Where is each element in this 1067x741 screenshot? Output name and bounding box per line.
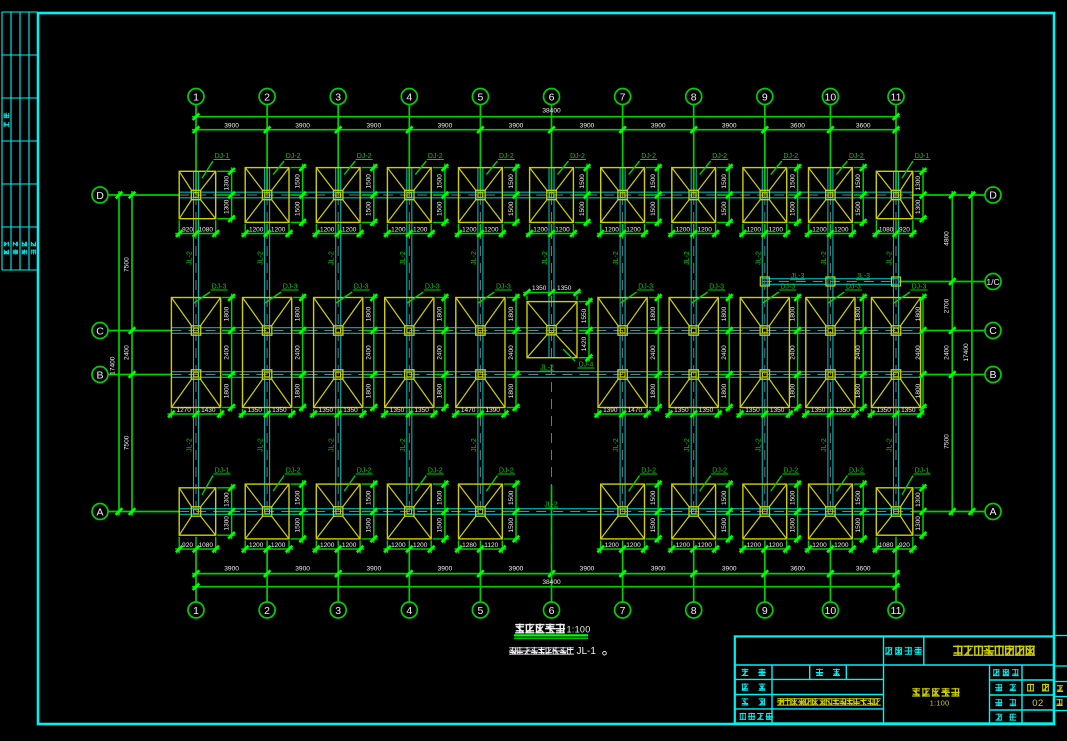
svg-text:3900: 3900 [224,122,239,129]
svg-text:1800: 1800 [721,383,728,398]
svg-text:DJ-2: DJ-2 [570,153,585,160]
svg-text:DJ-2: DJ-2 [783,153,798,160]
svg-text:920: 920 [182,542,193,549]
svg-text:1500: 1500 [294,174,301,189]
svg-text:1550: 1550 [581,308,588,323]
svg-text:1280: 1280 [462,542,477,549]
svg-text:1500: 1500 [650,490,657,505]
svg-text:2400: 2400 [855,345,862,360]
svg-text:DJ-2: DJ-2 [357,153,372,160]
svg-text:3900: 3900 [295,566,310,573]
svg-text:B: B [96,369,103,381]
svg-text:1200: 1200 [626,226,641,233]
svg-text:17400: 17400 [963,343,970,362]
svg-text:1500: 1500 [508,174,515,189]
svg-text:1500: 1500 [855,490,862,505]
svg-text:2400: 2400 [366,345,373,360]
svg-text:1800: 1800 [915,383,922,398]
svg-text:1:100: 1:100 [566,624,590,634]
svg-text:8: 8 [691,605,697,617]
svg-text:1200: 1200 [676,542,691,549]
svg-text:JL-2: JL-2 [821,251,828,265]
svg-text:3900: 3900 [366,122,381,129]
svg-text:DJ-1: DJ-1 [915,468,930,475]
svg-text:1390: 1390 [485,407,500,414]
svg-text:920: 920 [899,542,910,549]
svg-text:1200: 1200 [697,542,712,549]
svg-text:1200: 1200 [320,226,335,233]
svg-text:1800: 1800 [437,383,444,398]
svg-text:3600: 3600 [856,122,871,129]
svg-text:DJ-2: DJ-2 [499,468,514,475]
svg-text:1200: 1200 [604,226,619,233]
svg-text:JL-2: JL-2 [400,251,407,265]
svg-text:1500: 1500 [437,518,444,533]
svg-text:1500: 1500 [508,490,515,505]
svg-text:1300: 1300 [915,516,922,531]
svg-text:1200: 1200 [555,226,570,233]
svg-text:DJ-3: DJ-3 [283,284,298,291]
svg-text:1: 1 [193,91,199,103]
svg-text:1200: 1200 [812,542,827,549]
svg-text:DJ-2: DJ-2 [499,153,514,160]
svg-text:JL-2: JL-2 [887,438,894,452]
svg-text:2400: 2400 [123,345,130,360]
svg-text:1350: 1350 [390,407,405,414]
svg-text:5: 5 [477,91,483,103]
svg-text:1500: 1500 [294,490,301,505]
svg-text:3900: 3900 [438,122,453,129]
svg-text:1500: 1500 [294,201,301,216]
svg-text:DJ-2: DJ-2 [428,153,443,160]
svg-text:JL-2: JL-2 [400,438,407,452]
svg-text:DJ-2: DJ-2 [712,153,727,160]
svg-text:1500: 1500 [789,518,796,533]
svg-text:1500: 1500 [366,174,373,189]
svg-text:1200: 1200 [747,226,762,233]
svg-text:1500: 1500 [721,518,728,533]
svg-text:7500: 7500 [944,434,951,449]
svg-text:A: A [989,506,996,518]
svg-text:1200: 1200 [271,542,286,549]
svg-text:1500: 1500 [294,518,301,533]
svg-text:B: B [989,369,996,381]
svg-text:3900: 3900 [295,122,310,129]
svg-text:1350: 1350 [876,407,891,414]
svg-text:1500: 1500 [366,490,373,505]
svg-text:1500: 1500 [789,201,796,216]
svg-text:DJ-1: DJ-1 [915,153,930,160]
svg-text:3900: 3900 [509,566,524,573]
svg-text:DJ-3: DJ-3 [846,284,861,291]
svg-text:1800: 1800 [789,306,796,321]
svg-text:1350: 1350 [699,407,714,414]
svg-text:6: 6 [549,91,555,103]
svg-text:1800: 1800 [294,383,301,398]
svg-text:DJ-2: DJ-2 [357,468,372,475]
svg-text:17400: 17400 [110,356,117,375]
svg-text:JL-3: JL-3 [856,273,870,280]
svg-text:1080: 1080 [199,542,214,549]
svg-text:1300: 1300 [915,492,922,507]
svg-text:DJ-4: DJ-4 [579,362,594,369]
svg-text:DJ-3: DJ-3 [425,284,440,291]
svg-text:JL-2: JL-2 [821,438,828,452]
svg-text:1800: 1800 [789,383,796,398]
svg-text:1500: 1500 [721,490,728,505]
svg-text:2400: 2400 [223,345,230,360]
svg-text:DJ-3: DJ-3 [709,284,724,291]
svg-text:1500: 1500 [721,201,728,216]
svg-text:1800: 1800 [650,306,657,321]
svg-text:1200: 1200 [769,542,784,549]
svg-text:3: 3 [335,91,341,103]
svg-text:1200: 1200 [626,542,641,549]
svg-text:2700: 2700 [944,298,951,313]
svg-text:1080: 1080 [879,542,894,549]
svg-text:1500: 1500 [789,490,796,505]
svg-text:1200: 1200 [676,226,691,233]
svg-text:10: 10 [825,91,837,103]
svg-text:DJ-3: DJ-3 [912,284,927,291]
svg-text:1200: 1200 [249,542,264,549]
svg-text:2400: 2400 [789,345,796,360]
svg-text:2400: 2400 [294,345,301,360]
svg-text:1800: 1800 [366,383,373,398]
svg-text:1200: 1200 [747,542,762,549]
svg-text:1120: 1120 [484,542,498,549]
svg-text:DJ-3: DJ-3 [638,284,653,291]
svg-text:1350: 1350 [248,407,263,414]
svg-text:1800: 1800 [508,383,515,398]
svg-text:11: 11 [891,91,902,103]
svg-text:3900: 3900 [580,122,595,129]
svg-text:1800: 1800 [508,306,515,321]
svg-text:2: 2 [264,91,270,103]
svg-text:1470: 1470 [461,407,476,414]
svg-text:1430: 1430 [201,407,216,414]
svg-text:10: 10 [825,605,837,617]
svg-text:1/C: 1/C [986,277,999,287]
svg-text:3900: 3900 [722,566,737,573]
svg-text:1500: 1500 [721,174,728,189]
svg-text:6: 6 [549,605,555,617]
svg-text:920: 920 [899,226,910,233]
svg-text:DJ-2: DJ-2 [428,468,443,475]
svg-text:1200: 1200 [413,542,428,549]
svg-text:9: 9 [762,605,768,617]
svg-text:1200: 1200 [604,542,619,549]
svg-text:1500: 1500 [366,518,373,533]
svg-text:5: 5 [477,605,483,617]
svg-text:7: 7 [620,91,626,103]
svg-text:1200: 1200 [769,226,784,233]
svg-text:D: D [96,190,104,202]
svg-text:1:100: 1:100 [930,699,950,708]
svg-text:1800: 1800 [650,383,657,398]
svg-text:4: 4 [406,91,412,103]
svg-text:1270: 1270 [176,407,191,414]
svg-text:1200: 1200 [834,542,849,549]
svg-text:JL-2: JL-2 [329,438,336,452]
svg-text:1350: 1350 [272,407,287,414]
svg-text:JL-1: JL-1 [577,646,597,657]
svg-text:4800: 4800 [944,231,951,246]
svg-text:1350: 1350 [414,407,429,414]
svg-text:1200: 1200 [697,226,712,233]
svg-text:DJ-2: DJ-2 [286,468,301,475]
svg-text:3600: 3600 [790,566,805,573]
svg-text:3900: 3900 [651,566,666,573]
svg-text:1500: 1500 [366,201,373,216]
svg-text:C: C [96,325,104,337]
svg-text:1350: 1350 [901,407,916,414]
svg-text:1800: 1800 [915,306,922,321]
svg-text:11: 11 [891,605,902,617]
svg-text:1200: 1200 [413,226,428,233]
svg-text:JL-2: JL-2 [613,438,620,452]
svg-text:1500: 1500 [855,201,862,216]
svg-text:1350: 1350 [319,407,334,414]
svg-text:1: 1 [193,605,199,617]
svg-text:2400: 2400 [915,345,922,360]
svg-text:1200: 1200 [249,226,264,233]
svg-text:1500: 1500 [508,201,515,216]
svg-text:3900: 3900 [224,566,239,573]
svg-text:1350: 1350 [532,285,547,292]
svg-text:JL-2: JL-2 [471,438,478,452]
svg-text:8: 8 [691,91,697,103]
svg-text:1500: 1500 [437,490,444,505]
svg-text:1800: 1800 [855,383,862,398]
svg-text:JL-2: JL-2 [684,251,691,265]
svg-text:JL-2: JL-2 [684,438,691,452]
svg-text:1800: 1800 [294,306,301,321]
svg-text:1300: 1300 [223,516,230,531]
svg-text:3600: 3600 [790,122,805,129]
svg-text:1500: 1500 [508,518,515,533]
svg-text:DJ-3: DJ-3 [780,284,795,291]
svg-text:D: D [989,189,997,201]
svg-text:3600: 3600 [856,566,871,573]
svg-text:1300: 1300 [223,199,230,214]
svg-text:JL-2: JL-2 [542,251,549,265]
svg-text:7500: 7500 [123,435,130,450]
svg-text:DJ-1: DJ-1 [215,468,230,475]
svg-text:1200: 1200 [533,226,548,233]
svg-text:3900: 3900 [438,566,453,573]
svg-text:1500: 1500 [789,174,796,189]
svg-text:DJ-2: DJ-2 [641,153,656,160]
svg-text:JL-2: JL-2 [540,365,554,372]
svg-text:JL-2: JL-2 [471,251,478,265]
svg-text:1500: 1500 [650,201,657,216]
svg-text:2400: 2400 [944,345,951,360]
svg-text:1300: 1300 [915,199,922,214]
svg-text:DJ-2: DJ-2 [712,468,727,475]
svg-text:1500: 1500 [437,174,444,189]
svg-text:DJ-2: DJ-2 [783,468,798,475]
svg-text:1200: 1200 [462,226,477,233]
svg-text:JL-3: JL-3 [791,273,805,280]
svg-text:JL-2: JL-2 [613,251,620,265]
svg-text:DJ-2: DJ-2 [849,468,864,475]
svg-text:9: 9 [762,91,768,103]
svg-text:1800: 1800 [855,306,862,321]
svg-text:38400: 38400 [542,579,561,586]
svg-text:JL-2: JL-2 [329,251,336,265]
svg-text:1500: 1500 [579,201,586,216]
svg-text:1800: 1800 [721,306,728,321]
svg-text:1200: 1200 [320,542,335,549]
svg-text:DJ-3: DJ-3 [496,284,511,291]
svg-text:1350: 1350 [835,407,850,414]
svg-text:JL-2: JL-2 [887,251,894,265]
svg-text:3900: 3900 [722,122,737,129]
svg-text:1500: 1500 [855,174,862,189]
svg-text:3900: 3900 [366,566,381,573]
svg-text:1500: 1500 [437,201,444,216]
svg-text:JL-2: JL-2 [187,251,194,265]
svg-text:1080: 1080 [199,226,214,233]
svg-text:C: C [989,325,997,337]
svg-text:2400: 2400 [650,345,657,360]
svg-text:DJ-2: DJ-2 [849,153,864,160]
svg-text:1350: 1350 [811,407,826,414]
svg-text:DJ-3: DJ-3 [354,284,369,291]
svg-text:1800: 1800 [223,306,230,321]
svg-text:02: 02 [1032,698,1044,709]
svg-text:7: 7 [620,605,626,617]
svg-text:1200: 1200 [391,226,406,233]
svg-text:1500: 1500 [855,518,862,533]
svg-text:3900: 3900 [509,122,524,129]
svg-text:1350: 1350 [770,407,785,414]
svg-text:3: 3 [335,605,341,617]
svg-text:7500: 7500 [123,257,130,272]
svg-text:1420: 1420 [581,336,588,351]
svg-text:920: 920 [182,226,193,233]
svg-text:1200: 1200 [812,226,827,233]
svg-text:JL-2: JL-2 [755,251,762,265]
svg-text:38400: 38400 [542,107,561,114]
svg-text:1300: 1300 [915,176,922,191]
svg-text:1200: 1200 [271,226,286,233]
svg-text:1350: 1350 [674,407,689,414]
svg-text:JL-2: JL-2 [544,502,558,509]
svg-text:3900: 3900 [651,122,666,129]
svg-text:DJ-3: DJ-3 [212,284,227,291]
svg-text:1350: 1350 [343,407,358,414]
svg-text:1200: 1200 [484,226,499,233]
svg-text:1350: 1350 [745,407,760,414]
svg-text:JL-2: JL-2 [755,438,762,452]
svg-text:2400: 2400 [508,345,515,360]
svg-text:1300: 1300 [223,492,230,507]
svg-text:2400: 2400 [721,345,728,360]
svg-text:1500: 1500 [650,518,657,533]
svg-text:JL-2: JL-2 [258,251,265,265]
svg-text:1200: 1200 [342,226,357,233]
svg-text:1390: 1390 [603,407,618,414]
svg-text:DJ-1: DJ-1 [215,153,230,160]
svg-text:DJ-2: DJ-2 [286,153,301,160]
svg-text:1080: 1080 [879,226,894,233]
svg-text:4: 4 [406,605,412,617]
svg-text:1350: 1350 [557,285,572,292]
svg-text:1200: 1200 [391,542,406,549]
svg-text:1800: 1800 [437,306,444,321]
svg-text:2: 2 [264,605,270,617]
svg-text:1800: 1800 [366,306,373,321]
svg-text:JL-2: JL-2 [187,438,194,452]
svg-text:A: A [96,506,103,518]
svg-text:1300: 1300 [223,176,230,191]
svg-text:1800: 1800 [223,383,230,398]
svg-text:1200: 1200 [834,226,849,233]
svg-text:DJ-2: DJ-2 [641,468,656,475]
svg-text:JL-2: JL-2 [258,438,265,452]
svg-text:1500: 1500 [579,174,586,189]
svg-text:1470: 1470 [628,407,643,414]
svg-text:1500: 1500 [650,174,657,189]
svg-text:2400: 2400 [437,345,444,360]
svg-text:3900: 3900 [580,566,595,573]
svg-text:1200: 1200 [342,542,357,549]
